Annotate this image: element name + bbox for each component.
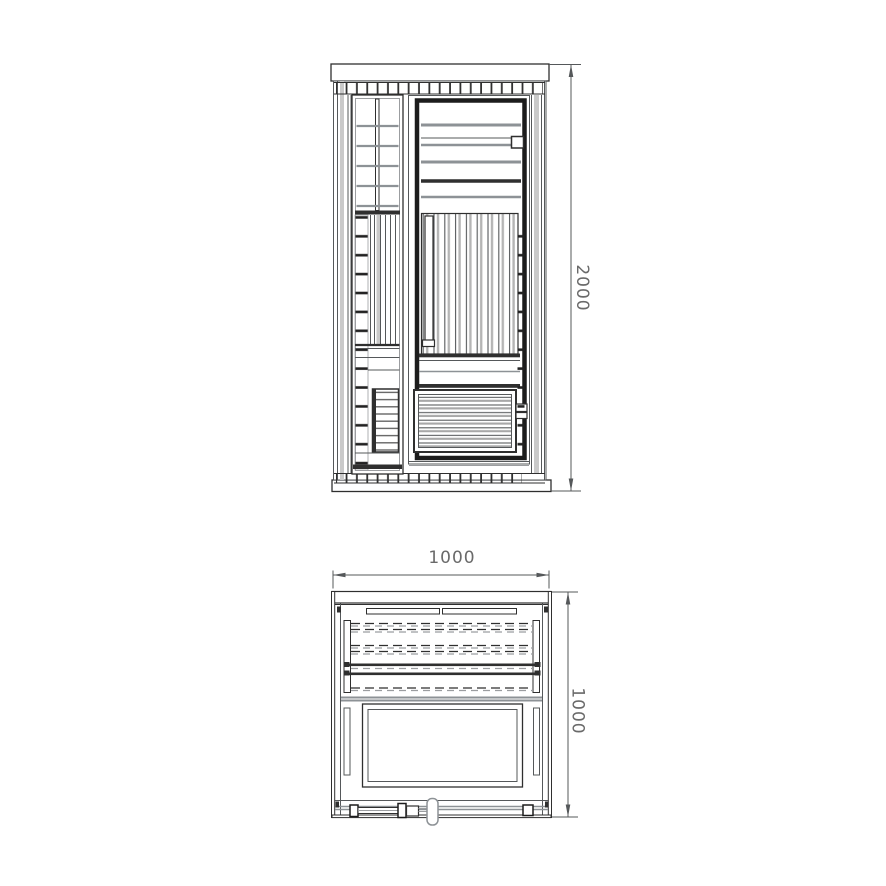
height-dimension-label: 2000	[572, 264, 592, 311]
bench-rail-right	[533, 621, 540, 693]
plan-view	[332, 592, 552, 826]
bench-hidden-edges-dark	[351, 624, 533, 689]
door-lock-block	[398, 804, 406, 818]
wall-log-ends-right	[518, 222, 525, 458]
window-sill	[355, 211, 400, 215]
side-wall-right	[548, 592, 551, 818]
width-extension-lines	[333, 571, 549, 589]
wall-plank-shade-left	[340, 81, 344, 480]
lower-vent-slats	[419, 395, 512, 448]
floor-box	[363, 704, 523, 787]
front-corner-fitting-right	[545, 802, 549, 808]
bench-clamp	[344, 671, 350, 676]
bottom-slat-ticks	[336, 474, 522, 483]
panel-bottom-bar	[353, 465, 402, 470]
door-hinge-right	[523, 805, 533, 816]
floor-box-inner	[368, 710, 517, 782]
bench-clamp	[535, 662, 541, 667]
door-hardware-plan	[350, 799, 533, 826]
back-wall	[332, 592, 551, 604]
door-batten-foot	[423, 340, 435, 347]
roof-cap	[331, 64, 549, 81]
bench	[341, 621, 542, 701]
top-slat-ticks	[336, 83, 543, 94]
front-corner-fitting-left	[336, 802, 340, 808]
side-window-panel	[352, 95, 403, 474]
corner-fitting-right	[544, 607, 548, 613]
drawing-canvas: 2000	[0, 0, 886, 886]
plank-shade	[377, 215, 381, 345]
side-wall-left	[332, 592, 335, 818]
bench-front-bar-bottom	[349, 673, 535, 676]
backrest-board-right	[443, 609, 517, 615]
corner-fitting-left	[337, 607, 341, 613]
height-dimension: 2000	[549, 65, 592, 492]
bench-edge-lines	[341, 698, 542, 701]
backrest-board-left	[367, 609, 440, 615]
lower-vent-panel-left	[373, 389, 399, 452]
slat-panel-bottom-bar	[419, 354, 520, 358]
front-elevation-view	[331, 64, 551, 492]
door-vent-square	[512, 137, 524, 149]
door-handle-capsule	[427, 799, 438, 826]
bench-front-bar-top	[349, 664, 535, 667]
bottom-slat-row	[334, 474, 545, 484]
width-dimension-label: 1000	[428, 548, 475, 568]
depth-dimension: 1000	[552, 592, 588, 817]
lower-vent-panel-edge	[373, 389, 376, 452]
door-lower-vent-panel	[414, 390, 516, 452]
window-mullion	[376, 99, 380, 211]
door-mid-bar	[419, 384, 520, 388]
door-batten	[425, 216, 433, 344]
bench-rail-left	[344, 621, 351, 693]
door-lock-case	[407, 806, 419, 816]
wall-batten-right	[534, 708, 540, 775]
bench-hidden-edges-light	[351, 626, 533, 691]
backrest-boards	[367, 609, 517, 615]
width-dimension: 1000	[333, 548, 549, 589]
wall-batten-left	[344, 708, 350, 775]
bench-clamp	[535, 671, 541, 676]
sauna-technical-drawing: 2000	[0, 0, 886, 886]
depth-dimension-label: 1000	[568, 687, 588, 734]
front-wall-outer-edge	[332, 815, 551, 818]
top-slat-row	[334, 83, 545, 95]
door-hinge-left	[350, 805, 358, 817]
wall-log-ends-left	[355, 215, 368, 470]
door-slat-panel	[422, 214, 519, 355]
bench-clamp	[344, 662, 350, 667]
wall-plank-shade-right	[534, 95, 539, 473]
glass-door	[409, 96, 530, 466]
